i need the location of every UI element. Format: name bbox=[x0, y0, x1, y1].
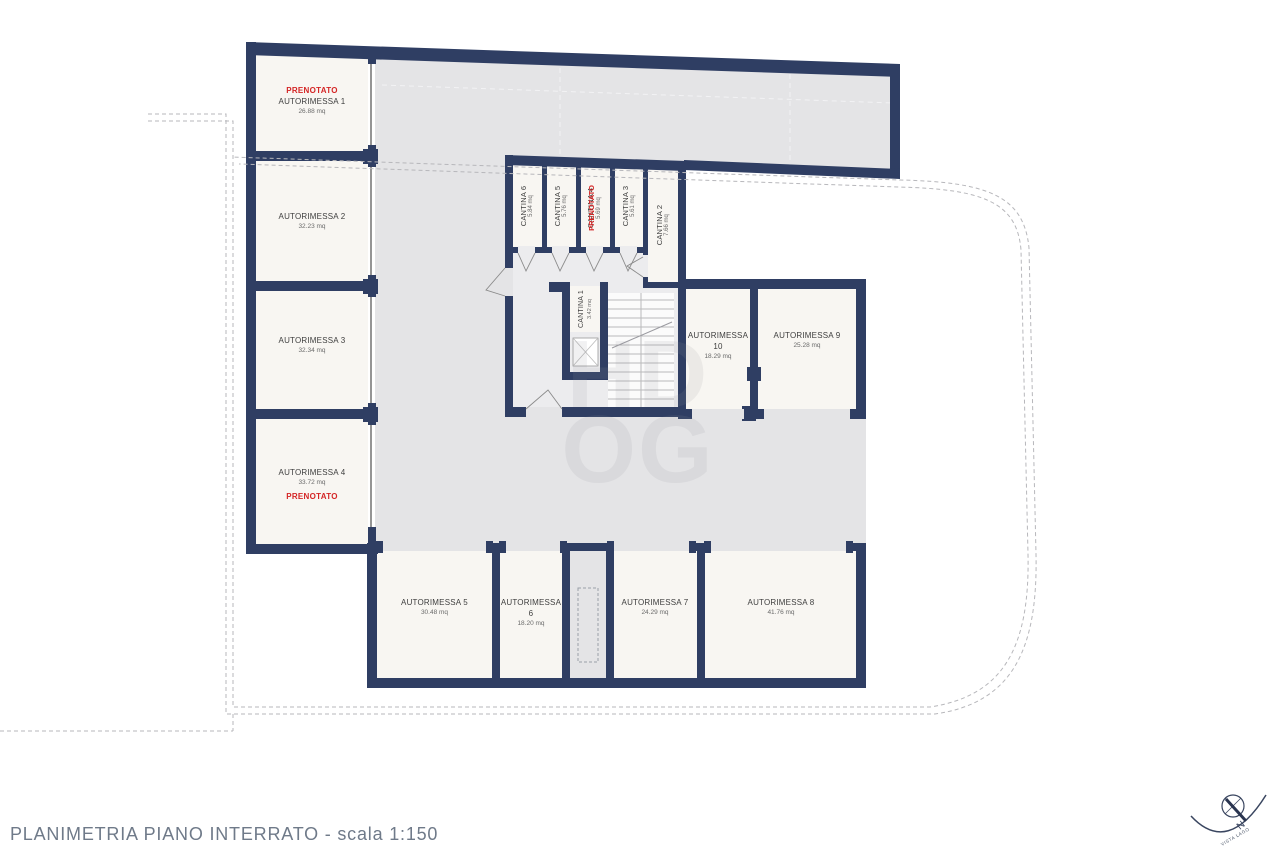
elevator bbox=[573, 338, 598, 366]
compass: N VISTA LAGO bbox=[1191, 795, 1266, 847]
compass-view-label: VISTA LAGO bbox=[1220, 826, 1250, 846]
floor-plan-sheet: N VISTA LAGO HD OG PRENOTATO AUTORIMESSA… bbox=[0, 0, 1280, 854]
page-title: PLANIMETRIA PIANO INTERRATO - scala 1:15… bbox=[10, 824, 438, 845]
floor-plan-drawing: N VISTA LAGO bbox=[0, 0, 1280, 854]
